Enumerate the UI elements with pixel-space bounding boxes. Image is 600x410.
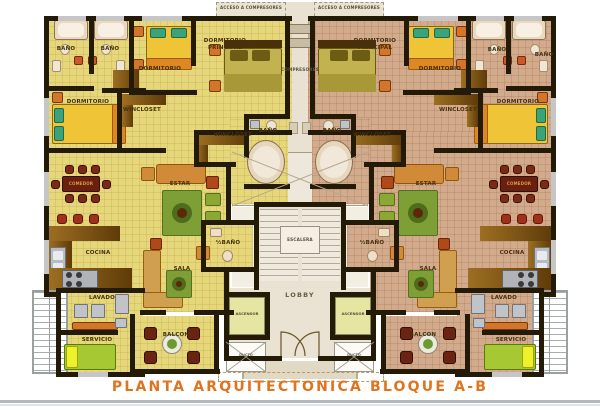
- room-label-bath-center-left: BAÑO: [250, 128, 286, 135]
- balcony-chair: [144, 351, 157, 364]
- window: [492, 372, 522, 377]
- pillow: [150, 28, 166, 38]
- side-table: [206, 176, 219, 189]
- wall: [254, 202, 346, 207]
- rug-center: [176, 281, 182, 287]
- window: [551, 240, 556, 274]
- pillow: [536, 126, 546, 141]
- wall: [265, 292, 270, 340]
- room-label-cocina-right: COCINA: [490, 250, 534, 257]
- stool: [57, 214, 67, 224]
- bathtub-basin: [252, 146, 280, 178]
- balcony-chair: [400, 351, 413, 364]
- wall: [506, 16, 511, 74]
- drawing-title: PLANTA ARQUITECTONICA BLOQUE A-B: [0, 379, 600, 395]
- border-line-light: [0, 404, 600, 406]
- room-label-lavado-left: LAVADO: [80, 295, 124, 302]
- wall: [404, 16, 409, 66]
- stool: [501, 214, 511, 224]
- wall: [44, 86, 94, 91]
- dining-chair: [513, 194, 522, 203]
- balcony-table-top: [423, 339, 433, 349]
- wall: [434, 310, 460, 315]
- armchair: [141, 167, 155, 181]
- armchair: [379, 193, 395, 206]
- stool: [89, 214, 99, 224]
- pillow: [66, 346, 78, 368]
- room-label-balcon-right: BALCON: [400, 332, 446, 339]
- wall: [506, 86, 556, 91]
- burner: [518, 272, 524, 278]
- wall: [380, 369, 470, 374]
- border-line-dark: [0, 400, 600, 403]
- side-table: [150, 238, 162, 250]
- room-label-bedroom-top-right: DORMITORIO: [408, 66, 472, 73]
- wall: [478, 92, 483, 148]
- window: [44, 98, 49, 136]
- room-label-master-bedroom-right: DORMITORIO PRINCIPAL: [346, 38, 404, 52]
- closet: [461, 70, 487, 90]
- label-elevator-right: ASCENSOR: [335, 312, 371, 317]
- washer: [91, 304, 105, 318]
- stool: [533, 214, 543, 224]
- label-access-compressors-left: ACCESO A COMPRESORES: [218, 5, 284, 10]
- dining-table-right: COMEDOR: [500, 176, 538, 192]
- wall: [434, 148, 556, 153]
- dining-chair: [65, 194, 74, 203]
- laundry-fixture: [473, 318, 485, 328]
- wall: [224, 292, 270, 297]
- dining-chair: [500, 194, 509, 203]
- bathtub-basin: [98, 23, 124, 37]
- window: [418, 16, 458, 21]
- toilet: [367, 250, 378, 262]
- rug-center: [177, 208, 187, 218]
- dining-chair: [78, 194, 87, 203]
- balcony-chair: [187, 351, 200, 364]
- wall: [369, 166, 374, 222]
- pillow: [536, 108, 546, 123]
- burner: [66, 281, 72, 287]
- balcony-chair: [443, 351, 456, 364]
- dining-chair: [540, 180, 549, 189]
- room-label-bedroom-top-left: DORMITORIO: [128, 66, 192, 73]
- burner: [76, 281, 82, 287]
- wall: [371, 268, 376, 296]
- burner: [66, 272, 72, 278]
- room-label-cocina-left: COCINA: [76, 250, 120, 257]
- dining-chair: [513, 165, 522, 174]
- burner: [528, 272, 534, 278]
- wall: [371, 292, 376, 340]
- dining-chair: [51, 180, 60, 189]
- nightstand: [379, 80, 391, 92]
- room-label-servicio-right: SERVICIO: [488, 337, 534, 344]
- balcony-table-top: [167, 339, 177, 349]
- wall: [194, 130, 199, 166]
- window: [58, 16, 86, 21]
- window: [44, 240, 49, 274]
- rug-center: [413, 208, 423, 218]
- floor-plan-drawing: COMEDOR COMEDOR BAÑO BAÑO DORMITORIO DOR…: [0, 0, 600, 410]
- room-label-bath-2-left: BAÑO: [92, 46, 128, 53]
- label-elevator-left: ASCENSOR: [229, 312, 265, 317]
- label-access-compressors-right: ACCESO A COMPRESORES: [316, 5, 382, 10]
- window: [142, 16, 182, 21]
- room-label-wincloset-1-left: WINCLOSET: [110, 107, 174, 114]
- wall: [330, 335, 376, 340]
- laundry-fixture: [115, 318, 127, 328]
- wall: [244, 184, 290, 189]
- dining-chair: [500, 165, 509, 174]
- bathtub-basin: [58, 23, 84, 37]
- wall: [129, 16, 134, 92]
- wall: [224, 335, 270, 340]
- wall: [310, 184, 356, 189]
- dining-table-left: COMEDOR: [62, 176, 100, 192]
- room-label-bath-1-left: BAÑO: [48, 46, 84, 53]
- wall: [466, 16, 471, 92]
- pillow: [413, 28, 429, 38]
- label-duct-left: DUCTO: [226, 353, 266, 357]
- toilet: [222, 250, 233, 262]
- stool: [517, 214, 527, 224]
- wall: [482, 330, 544, 335]
- wall: [214, 314, 219, 374]
- nightstand: [209, 80, 221, 92]
- closet: [122, 94, 166, 105]
- closet: [113, 70, 139, 90]
- dining-chair: [91, 165, 100, 174]
- wall: [330, 292, 376, 297]
- side-table: [438, 238, 450, 250]
- ironing-board: [482, 322, 528, 330]
- wall: [89, 16, 94, 74]
- dining-chair: [526, 165, 535, 174]
- stair-rail-right: [549, 292, 550, 372]
- sink: [378, 228, 390, 237]
- compressor-unit: [289, 38, 311, 48]
- dining-chair: [489, 180, 498, 189]
- burner: [528, 281, 534, 287]
- wall: [56, 288, 145, 293]
- window: [96, 16, 124, 21]
- armchair: [445, 167, 459, 181]
- compressor-unit: [289, 24, 311, 34]
- wall: [381, 314, 386, 374]
- sink-basin: [53, 251, 63, 260]
- room-label-lavado-right: LAVADO: [482, 295, 526, 302]
- label-escalera: ESCALERA: [280, 237, 320, 242]
- wall: [341, 202, 346, 290]
- ironing-board: [72, 322, 118, 330]
- wall: [129, 90, 197, 95]
- wall: [310, 114, 356, 119]
- wall: [130, 369, 220, 374]
- dining-chair: [65, 165, 74, 174]
- bath-fixture: [74, 56, 83, 65]
- wall: [140, 310, 166, 315]
- sink: [539, 60, 548, 72]
- bathtub-basin: [320, 146, 348, 178]
- wall: [226, 166, 231, 222]
- room-label-bedroom-2-left: DORMITORIO: [56, 99, 120, 106]
- wall: [224, 268, 229, 296]
- kitchen-counter: [480, 226, 552, 241]
- room-label-estar-right: ESTAR: [404, 181, 448, 188]
- window: [44, 172, 49, 206]
- wall: [44, 148, 166, 153]
- wall: [455, 288, 544, 293]
- room-label-estar-left: ESTAR: [158, 181, 202, 188]
- room-label-sala-left: SALA: [160, 266, 204, 273]
- wall: [254, 202, 259, 290]
- room-label-wincloset-1-right: WINCLOSET: [426, 107, 490, 114]
- dining-chair: [526, 194, 535, 203]
- armchair: [205, 193, 221, 206]
- pillow: [252, 50, 270, 61]
- label-compressors: COMPRESORES: [272, 67, 328, 72]
- room-label-bath-2-right: BAÑO: [526, 52, 562, 59]
- sink: [210, 228, 222, 237]
- room-label-bedroom-2-right: DORMITORIO: [486, 99, 550, 106]
- sink-basin: [537, 251, 547, 260]
- blanket: [224, 74, 282, 92]
- bathtub-basin: [476, 23, 502, 37]
- sink: [52, 60, 61, 72]
- burner: [76, 272, 82, 278]
- washer: [495, 304, 509, 318]
- wall: [403, 90, 471, 95]
- room-label-half-bath-right: ½BAÑO: [349, 240, 395, 247]
- stool: [73, 214, 83, 224]
- room-label-balcon-left: BALCON: [153, 332, 199, 339]
- kitchen-counter: [48, 226, 120, 241]
- room-label-master-bedroom-left: DORMITORIO PRINCIPAL: [196, 38, 254, 52]
- wall: [130, 314, 135, 374]
- pillow: [434, 28, 450, 38]
- stair-rail-left: [49, 292, 50, 372]
- room-label-bath-center-right: BAÑO: [314, 128, 350, 135]
- washer: [512, 304, 526, 318]
- pillow: [54, 108, 64, 123]
- burner: [518, 281, 524, 287]
- rug-center: [418, 281, 424, 287]
- pillow: [54, 126, 64, 141]
- dining-chair: [102, 180, 111, 189]
- closet: [434, 94, 478, 105]
- window: [78, 372, 108, 377]
- label-lobby: LOBBY: [272, 291, 328, 299]
- nightstand: [133, 26, 144, 37]
- wall: [465, 314, 470, 374]
- blanket: [318, 74, 376, 92]
- room-label-bath-1-right: BAÑO: [479, 47, 515, 54]
- window: [476, 16, 504, 21]
- dining-chair: [78, 165, 87, 174]
- dining-chair: [91, 194, 100, 203]
- wall: [56, 330, 118, 335]
- label-duct-right: DUCTO: [334, 353, 374, 357]
- side-table: [381, 176, 394, 189]
- washer: [74, 304, 88, 318]
- room-label-sala-right: SALA: [406, 266, 450, 273]
- window: [551, 98, 556, 136]
- pillow: [522, 346, 534, 368]
- wall: [244, 114, 290, 119]
- pillow: [171, 28, 187, 38]
- room-label-servicio-left: SERVICIO: [74, 337, 120, 344]
- window: [551, 172, 556, 206]
- bathtub-basin: [516, 23, 542, 37]
- window: [514, 16, 542, 21]
- bath-fixture: [517, 56, 526, 65]
- room-label-half-bath-left: ½BAÑO: [205, 240, 251, 247]
- sofa: [143, 250, 161, 294]
